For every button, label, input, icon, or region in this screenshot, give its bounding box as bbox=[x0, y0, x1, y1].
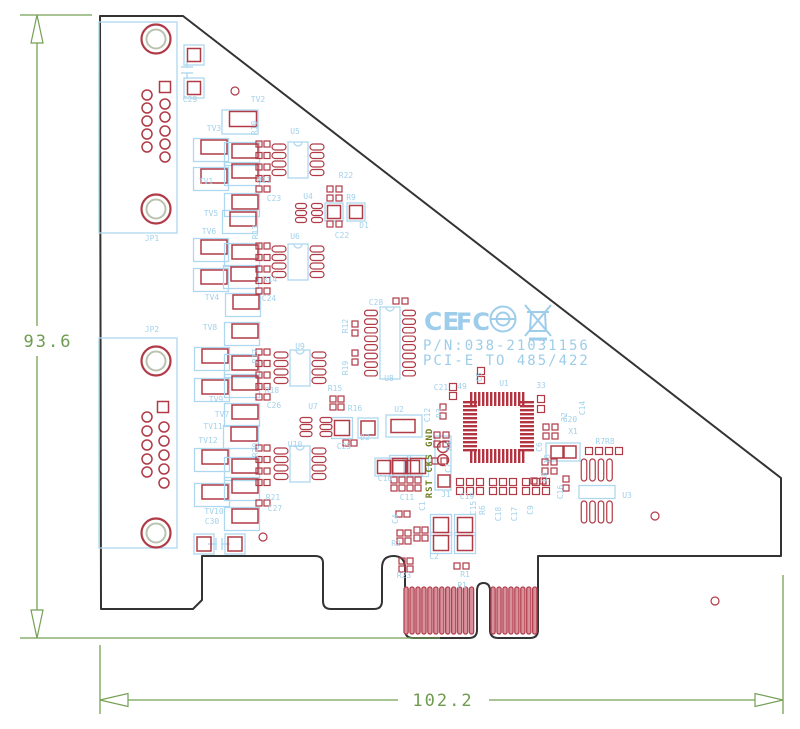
ref-label-tv10: TV10 bbox=[204, 507, 223, 516]
qfp-pin bbox=[478, 392, 480, 406]
ref-label-c15: C15 bbox=[469, 501, 478, 516]
ic-pin-pad bbox=[296, 218, 307, 223]
silkscreen-box bbox=[579, 486, 615, 499]
qfp-pin bbox=[463, 449, 477, 451]
passive-pad bbox=[399, 485, 405, 491]
passive-pad bbox=[596, 448, 603, 455]
header-pin-labels: RST CKS GND bbox=[425, 428, 435, 499]
ic-pin-pad bbox=[365, 310, 378, 316]
passive-pad bbox=[393, 298, 399, 304]
ic-pin-pad bbox=[312, 378, 326, 384]
passive-pad bbox=[533, 488, 540, 495]
ref-label-c8: C8 bbox=[540, 472, 549, 482]
passive-pad bbox=[543, 488, 550, 495]
gold-finger bbox=[503, 587, 507, 634]
passive-pad bbox=[352, 321, 358, 327]
ref-label-c26: C26 bbox=[267, 401, 282, 410]
ic-pin-pad bbox=[581, 459, 587, 481]
qfp-pin bbox=[502, 392, 504, 406]
passive-pad bbox=[405, 538, 411, 544]
smd-pad bbox=[328, 206, 341, 219]
test-pad-silk-box bbox=[226, 294, 261, 317]
passive-pad bbox=[616, 448, 623, 455]
passive-pad bbox=[510, 479, 517, 486]
ref-label-r4: R4 bbox=[445, 441, 454, 451]
ref-label-c5: C5 bbox=[475, 372, 484, 382]
passive-pad bbox=[415, 485, 421, 491]
ref-label-u5: U5 bbox=[290, 127, 300, 136]
ref-label-tv1: TV1 bbox=[199, 177, 214, 186]
ic-pin-pad bbox=[310, 170, 324, 176]
smd-pad bbox=[228, 537, 242, 551]
ref-label-c6: C6 bbox=[535, 442, 544, 452]
ic-body-outline bbox=[288, 142, 308, 178]
gold-finger bbox=[422, 587, 426, 634]
ic-pin-pad bbox=[320, 425, 332, 430]
model-text: PCI-E TO 485/422 bbox=[423, 353, 590, 369]
gold-finger bbox=[521, 587, 525, 634]
ref-label-r16: R16 bbox=[348, 404, 363, 413]
qfp-pin bbox=[520, 421, 534, 423]
ic-pin-pad bbox=[320, 432, 332, 437]
ref-label-r1: R1 bbox=[460, 570, 470, 579]
test-pad bbox=[232, 459, 258, 473]
qfp-pin bbox=[514, 392, 516, 406]
passive-pad bbox=[443, 432, 449, 438]
ic-pin-pad bbox=[365, 362, 378, 368]
ref-label-tv5: TV5 bbox=[204, 209, 219, 218]
qfp-pin bbox=[520, 437, 534, 439]
dimension-arrow bbox=[31, 610, 43, 638]
smd-pad bbox=[434, 536, 449, 551]
ic-pin-pad bbox=[365, 370, 378, 376]
gold-finger bbox=[440, 587, 444, 634]
ref-label-tv3: TV3 bbox=[207, 124, 222, 133]
qfp-pin bbox=[463, 405, 477, 407]
ref-label-u1: U1 bbox=[499, 379, 509, 388]
passive-pad bbox=[422, 527, 428, 533]
passive-pad bbox=[338, 404, 344, 410]
ic-pin-pad bbox=[310, 255, 324, 261]
dsub-pin-hole bbox=[159, 450, 169, 460]
qfp-u1-footprint bbox=[463, 392, 534, 463]
passive-pad bbox=[543, 433, 549, 439]
qfp-pin bbox=[520, 405, 534, 407]
silkscreen-box bbox=[99, 22, 177, 233]
silkscreen-boxes-layer bbox=[99, 22, 615, 554]
ref-label-c9: C9 bbox=[526, 505, 535, 515]
qfp-pin bbox=[463, 425, 477, 427]
ref-label-c14: C14 bbox=[578, 401, 587, 416]
ref-label-16: 16 bbox=[543, 454, 552, 464]
rohs-circle-logo bbox=[491, 307, 516, 332]
qfp-pin bbox=[470, 392, 472, 406]
dsub-pin-hole bbox=[160, 152, 170, 162]
passive-pad bbox=[352, 359, 358, 365]
ref-label-p1: P1 bbox=[457, 581, 467, 590]
ic-pin-pad bbox=[365, 327, 378, 333]
dimension-arrow bbox=[100, 694, 128, 707]
passive-pad bbox=[264, 141, 270, 147]
passive-pad bbox=[407, 485, 413, 491]
qfp-pin bbox=[498, 449, 500, 463]
passive-pad bbox=[264, 372, 270, 378]
passive-pad bbox=[330, 404, 336, 410]
ic-body-outline bbox=[380, 307, 400, 379]
ref-label-c10: C10 bbox=[378, 474, 393, 483]
ic-pin-pad bbox=[272, 170, 286, 176]
ic-pin-pad bbox=[272, 263, 286, 269]
qfp-pin bbox=[518, 392, 520, 406]
passive-pad bbox=[264, 361, 270, 367]
ic-body-outline bbox=[288, 244, 308, 280]
ref-label-r12: R12 bbox=[341, 319, 350, 334]
passive-pad bbox=[441, 458, 447, 464]
gold-finger bbox=[497, 587, 501, 634]
gold-finger bbox=[446, 587, 450, 634]
ref-label-jp1: JP1 bbox=[145, 234, 160, 243]
ref-label-c16: C16 bbox=[556, 485, 565, 500]
passive-pad bbox=[586, 448, 593, 455]
ic-pin-pad bbox=[312, 361, 326, 367]
ref-label-c19: C19 bbox=[460, 492, 475, 501]
test-pad-silk-box bbox=[225, 404, 260, 427]
ref-label-c2: C2 bbox=[429, 552, 439, 561]
qfp-pin bbox=[463, 409, 477, 411]
ic-pin-pad bbox=[403, 345, 416, 351]
smd-pad bbox=[564, 446, 576, 458]
ref-label-u7: U7 bbox=[308, 402, 318, 411]
test-pad bbox=[233, 295, 259, 309]
part-number-text: P/N:038-21031156 bbox=[423, 338, 590, 354]
smd-pad bbox=[458, 536, 473, 551]
passive-pad bbox=[264, 480, 270, 486]
ic-pin-pad bbox=[312, 218, 323, 223]
passive-pad bbox=[477, 488, 484, 495]
gold-finger bbox=[491, 587, 495, 634]
ic-pin-pad bbox=[272, 144, 286, 150]
passive-pad bbox=[397, 530, 403, 536]
weee-bin-logo bbox=[525, 305, 551, 339]
ic-pin-pad bbox=[272, 246, 286, 252]
passive-pad bbox=[264, 457, 270, 463]
smd-pad bbox=[160, 82, 171, 93]
passive-pad bbox=[336, 221, 342, 227]
ref-label-tv7: TV7 bbox=[215, 410, 230, 419]
smd-pad bbox=[551, 446, 563, 458]
ic-pin-pad bbox=[274, 465, 288, 471]
ref-label-c22: C22 bbox=[335, 231, 350, 240]
test-pad-silk-box bbox=[225, 244, 260, 267]
ref-label-49: 49 bbox=[457, 382, 467, 391]
smd-pad bbox=[188, 49, 201, 62]
passive-pad bbox=[352, 350, 358, 356]
passive-pad bbox=[414, 535, 420, 541]
ref-label-d2: D2 bbox=[360, 433, 370, 442]
ref-label-u6: U6 bbox=[290, 232, 300, 241]
fcc-logo: FC bbox=[456, 308, 490, 336]
ref-label-c7: C7 bbox=[444, 463, 453, 473]
dim-height-label: 93.6 bbox=[24, 332, 73, 352]
ic-pin-pad bbox=[312, 369, 326, 375]
ic-pin-pad bbox=[403, 353, 416, 359]
ref-label-tv4: TV4 bbox=[205, 293, 220, 302]
test-pad bbox=[201, 140, 227, 154]
passive-pad bbox=[414, 527, 420, 533]
ic-pin-pad bbox=[300, 425, 312, 430]
qfp-pin bbox=[463, 437, 477, 439]
ic-pin-pad bbox=[320, 418, 332, 423]
ref-label-c1: C1 bbox=[418, 501, 427, 511]
passive-pad bbox=[463, 563, 469, 569]
via-hole bbox=[231, 87, 239, 95]
dsub-pin-hole bbox=[142, 116, 152, 126]
ic-pin-pad bbox=[310, 272, 324, 278]
ic-pin-pad bbox=[598, 459, 604, 481]
ic-pin-pad bbox=[274, 361, 288, 367]
ref-label-33: 33 bbox=[536, 381, 546, 390]
test-pad bbox=[231, 267, 257, 281]
ic-pin-pad bbox=[310, 263, 324, 269]
dsub-pin-hole bbox=[160, 112, 170, 122]
passive-pad bbox=[407, 558, 413, 564]
test-pad bbox=[232, 144, 258, 158]
ic-pin-pad bbox=[365, 345, 378, 351]
passive-pad bbox=[563, 476, 569, 482]
ic-pin-pad bbox=[365, 319, 378, 325]
passive-pad bbox=[256, 186, 262, 192]
dsub-pin-hole bbox=[160, 99, 170, 109]
ref-label-tv6: TV6 bbox=[202, 227, 217, 236]
ref-label-r14: R14 bbox=[263, 275, 278, 284]
ref-label-c4: C4 bbox=[391, 514, 400, 524]
qfp-pin bbox=[520, 413, 534, 415]
ic-pin-pad bbox=[274, 457, 288, 463]
ref-label-c17: C17 bbox=[510, 507, 519, 522]
passive-pad bbox=[330, 396, 336, 402]
via-hole bbox=[259, 533, 267, 541]
ic-pin-pad bbox=[312, 204, 323, 209]
passive-pad bbox=[264, 186, 270, 192]
test-pad-silk-box bbox=[225, 323, 260, 346]
test-pad bbox=[232, 509, 258, 523]
passive-pad bbox=[407, 477, 413, 483]
ic-pin-pad bbox=[598, 501, 604, 523]
ref-label-c20: C20 bbox=[563, 415, 578, 424]
ic-pin-pad bbox=[365, 353, 378, 359]
qfp-pin bbox=[520, 401, 534, 403]
passive-pad bbox=[264, 153, 270, 159]
ref-label-r19: R19 bbox=[341, 361, 350, 376]
ic-pin-pad bbox=[274, 378, 288, 384]
passive-pad bbox=[399, 477, 405, 483]
passive-pad bbox=[336, 186, 342, 192]
dsub-pin-hole bbox=[142, 142, 152, 152]
pcb-drawing-canvas: JP1C29TV2TV3R10U5TV1R11R22TV5C23U4R9TV6R… bbox=[0, 0, 800, 729]
gold-finger bbox=[428, 587, 432, 634]
ref-label-r17: R17 bbox=[251, 349, 260, 364]
smd-pad bbox=[378, 461, 391, 474]
gold-finger bbox=[515, 587, 519, 634]
ic-pin-pad bbox=[403, 370, 416, 376]
qfp-pin bbox=[520, 417, 534, 419]
qfp-pin bbox=[514, 449, 516, 463]
gold-finger bbox=[464, 587, 468, 634]
qfp-pin bbox=[486, 392, 488, 406]
ic-pin-pad bbox=[272, 153, 286, 159]
ic-pin-pad bbox=[403, 319, 416, 325]
test-pad-silk-box bbox=[194, 239, 229, 262]
passive-pad bbox=[500, 479, 507, 486]
qfp-pin bbox=[520, 441, 534, 443]
dim-width-label: 102.2 bbox=[412, 691, 473, 711]
ref-label-r23: R23 bbox=[397, 571, 412, 580]
ref-label-r22: R22 bbox=[339, 171, 354, 180]
ic-pin-pad bbox=[274, 474, 288, 480]
ic-body-outline bbox=[290, 446, 310, 482]
smd-pad bbox=[438, 475, 450, 487]
qfp-pin bbox=[520, 409, 534, 411]
gold-finger bbox=[404, 587, 408, 634]
ref-label-r13: R13 bbox=[251, 225, 260, 240]
gold-finger bbox=[434, 587, 438, 634]
passive-pad bbox=[352, 330, 358, 336]
qfp-pin bbox=[506, 392, 508, 406]
ref-label-x1: X1 bbox=[568, 427, 578, 436]
test-pad-silk-box bbox=[225, 508, 260, 531]
ref-label-r7r8: R7R8 bbox=[595, 437, 614, 446]
ic-pin-pad bbox=[312, 457, 326, 463]
passive-pad bbox=[404, 511, 410, 517]
ic-pin-pad bbox=[274, 369, 288, 375]
ic-pin-pad bbox=[272, 255, 286, 261]
gold-finger bbox=[458, 587, 462, 634]
smd-pad bbox=[391, 420, 415, 433]
ref-label-tv2: TV2 bbox=[251, 95, 266, 104]
ref-label-c30: C30 bbox=[205, 517, 220, 526]
ref-label-tv8: TV8 bbox=[203, 323, 218, 332]
dsub-pin-hole bbox=[160, 126, 170, 136]
ref-label-r3: R3 bbox=[435, 408, 444, 418]
qfp-pin bbox=[522, 392, 524, 406]
qfp-pin bbox=[482, 449, 484, 463]
ref-label-u2: U2 bbox=[394, 405, 404, 414]
ic-pin-pad bbox=[312, 465, 326, 471]
qfp-pin bbox=[463, 441, 477, 443]
ic-pin-pad bbox=[607, 501, 613, 523]
ref-label-tv12: TV12 bbox=[198, 436, 217, 445]
smd-pad bbox=[335, 421, 350, 436]
ref-label-c12: C12 bbox=[423, 408, 432, 423]
passive-pad bbox=[415, 477, 421, 483]
passive-pad bbox=[327, 221, 333, 227]
ic-pin-pad bbox=[310, 144, 324, 150]
mounting-hole-inner bbox=[147, 352, 166, 371]
ref-label-d1: D1 bbox=[359, 221, 369, 230]
passive-pad bbox=[422, 535, 428, 541]
mounting-hole-inner bbox=[147, 30, 166, 49]
dsub-pin-hole bbox=[160, 139, 170, 149]
gold-finger bbox=[509, 587, 513, 634]
qfp-pin bbox=[510, 392, 512, 406]
ic-body-outline bbox=[290, 350, 310, 386]
gold-finger bbox=[452, 587, 456, 634]
ic-pin-pad bbox=[296, 204, 307, 209]
ref-label-r20: R20 bbox=[251, 443, 260, 458]
ic-pin-pad bbox=[312, 352, 326, 358]
gold-finger bbox=[469, 587, 473, 634]
passive-pad bbox=[402, 298, 408, 304]
passive-pad bbox=[450, 393, 457, 400]
passive-pad bbox=[391, 485, 397, 491]
gold-finger bbox=[533, 587, 537, 634]
test-pad bbox=[230, 212, 256, 226]
qfp-pin bbox=[482, 392, 484, 406]
ref-label-u8: U8 bbox=[384, 374, 394, 383]
passive-pad bbox=[606, 448, 613, 455]
qfp-pin bbox=[486, 449, 488, 463]
dsub-pin-hole bbox=[142, 426, 152, 436]
ic-pin-pad bbox=[365, 336, 378, 342]
ic-pin-pad bbox=[274, 352, 288, 358]
passive-pad bbox=[264, 266, 270, 272]
mounting-hole-inner bbox=[147, 524, 166, 543]
test-pad bbox=[232, 405, 258, 419]
ref-label-jp2: JP2 bbox=[145, 325, 160, 334]
ic-pin-pad bbox=[590, 459, 596, 481]
qfp-pin bbox=[520, 449, 534, 451]
ref-label-c21: C21 bbox=[434, 383, 449, 392]
ic-pin-pad bbox=[272, 161, 286, 167]
ref-label-r6: R6 bbox=[478, 505, 487, 515]
ic-pin-pad bbox=[403, 327, 416, 333]
dsub-pin-hole bbox=[159, 436, 169, 446]
qfp-pin bbox=[463, 433, 477, 435]
ic-pin-pad bbox=[590, 501, 596, 523]
ref-label-u10: U10 bbox=[288, 440, 303, 449]
ic-pin-pad bbox=[312, 448, 326, 454]
passive-pad bbox=[543, 424, 549, 430]
passive-pad bbox=[490, 479, 497, 486]
ref-label-u3: U3 bbox=[622, 491, 632, 500]
qfp-pin bbox=[463, 413, 477, 415]
test-pad bbox=[232, 324, 258, 338]
passive-pad bbox=[538, 396, 545, 403]
dsub-pin-hole bbox=[159, 478, 169, 488]
ic-pin-pad bbox=[607, 459, 613, 481]
ref-label-c11: C11 bbox=[400, 493, 415, 502]
qfp-pin bbox=[520, 429, 534, 431]
ic-pin-pad bbox=[312, 474, 326, 480]
dsub-pin-hole bbox=[142, 440, 152, 450]
qfp-pin bbox=[490, 392, 492, 406]
ref-label-r10: R10 bbox=[250, 121, 259, 136]
qfp-pin bbox=[463, 445, 477, 447]
ref-label-c29: C29 bbox=[183, 95, 198, 104]
smd-pad bbox=[158, 402, 169, 413]
ref-label-r2: R2 bbox=[391, 539, 401, 548]
ic-pin-pad bbox=[310, 246, 324, 252]
ref-label-r11: R11 bbox=[257, 176, 272, 185]
passive-pad bbox=[264, 164, 270, 170]
pcie-edge-fingers bbox=[404, 587, 537, 634]
passive-pad bbox=[336, 195, 342, 201]
ref-label-tv11: TV11 bbox=[203, 422, 222, 431]
qfp-pin bbox=[463, 417, 477, 419]
qfp-pin bbox=[463, 429, 477, 431]
dsub-pin-hole bbox=[159, 464, 169, 474]
qfp-pin bbox=[502, 449, 504, 463]
